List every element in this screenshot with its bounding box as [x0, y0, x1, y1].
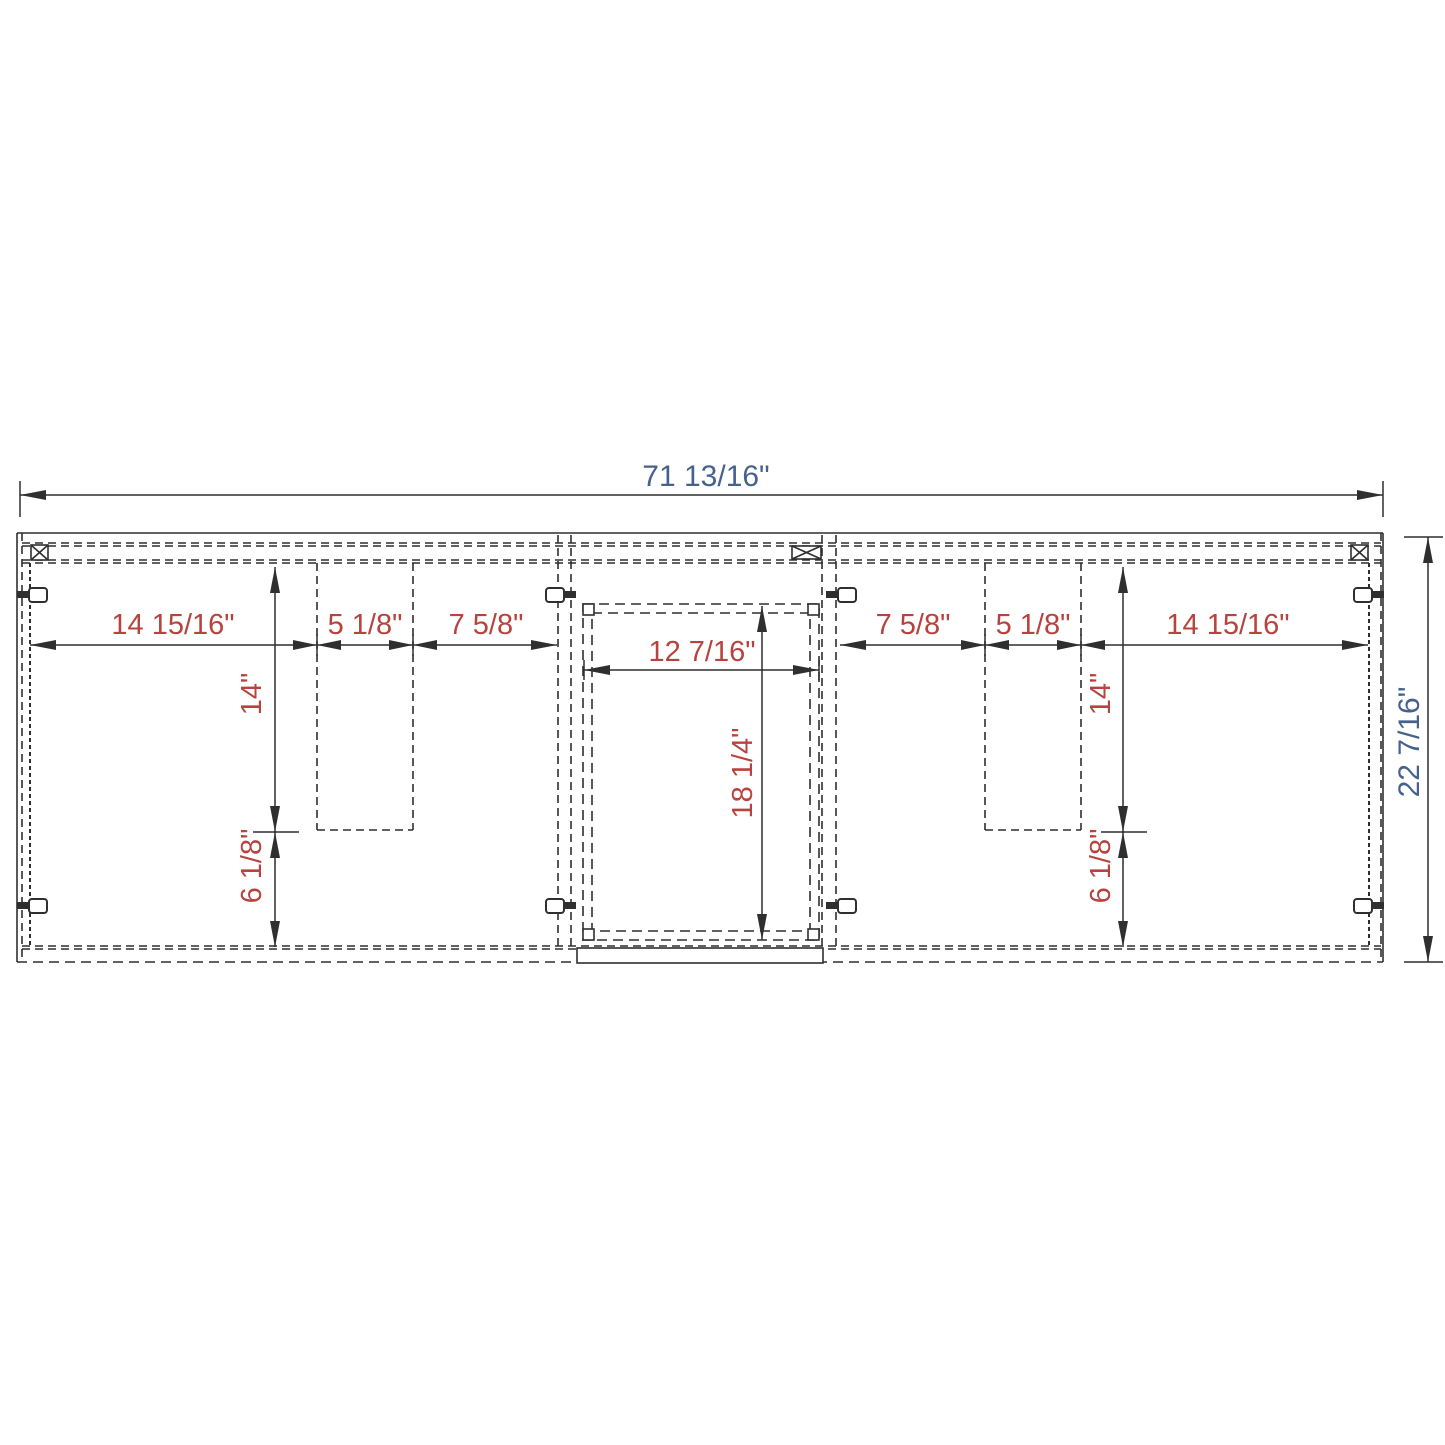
right-below-cutout-label: 6 1/8": [1085, 829, 1117, 904]
left-door-width-label: 14 15/16": [111, 609, 234, 641]
dimension-drawing-canvas: 71 13/16" 22 7/16" 14 15/16" 5 1/8" 7 5/…: [0, 0, 1445, 1445]
overall-height-dimension: 22 7/16": [1393, 537, 1443, 962]
left-below-cutout-label: 6 1/8": [236, 829, 268, 904]
cross-block-icon: [1351, 545, 1368, 560]
overall-width-dimension: 71 13/16": [20, 460, 1383, 517]
hinge-icon: [826, 899, 856, 913]
hinge-icon: [1354, 588, 1384, 602]
right-cutout-height-label: 14": [1085, 673, 1117, 716]
cabinet-outline: [17, 533, 1383, 962]
left-cutout: [317, 563, 413, 830]
hinge-icon: [1354, 899, 1384, 913]
corner-block-icon: [808, 929, 819, 940]
cross-block-icon: [31, 545, 48, 560]
right-horizontal-dimensions: 7 5/8" 5 1/8" 14 15/16": [840, 609, 1368, 656]
hinge-icon: [826, 588, 856, 602]
right-vertical-dimensions: 14" 6 1/8": [1085, 567, 1147, 947]
corner-block-icon: [583, 604, 594, 615]
right-cutout-width-label: 5 1/8": [996, 609, 1071, 641]
corner-block-icon: [583, 929, 594, 940]
left-horizontal-dimensions: 14 15/16" 5 1/8" 7 5/8": [30, 609, 557, 656]
right-side-gap-label: 7 5/8": [876, 609, 951, 641]
center-opening-height-label: 18 1/4": [727, 728, 759, 819]
center-opening-width-label: 12 7/16": [648, 636, 755, 668]
right-cutout: [985, 563, 1081, 830]
left-vertical-dimensions: 14" 6 1/8": [236, 567, 299, 947]
left-side-gap-label: 7 5/8": [449, 609, 524, 641]
cross-block-icon: [792, 546, 821, 559]
center-bottom-ledge: [577, 948, 823, 963]
overall-height-label: 22 7/16": [1393, 687, 1426, 798]
left-cutout-height-label: 14": [236, 673, 268, 716]
right-door-width-label: 14 15/16": [1166, 609, 1289, 641]
corner-block-icon: [808, 604, 819, 615]
overall-width-label: 71 13/16": [642, 460, 769, 493]
left-cutout-width-label: 5 1/8": [328, 609, 403, 641]
center-width-dimension: 12 7/16": [584, 636, 819, 680]
vanity-front-elevation-diagram: 71 13/16" 22 7/16" 14 15/16" 5 1/8" 7 5/…: [0, 0, 1445, 1445]
